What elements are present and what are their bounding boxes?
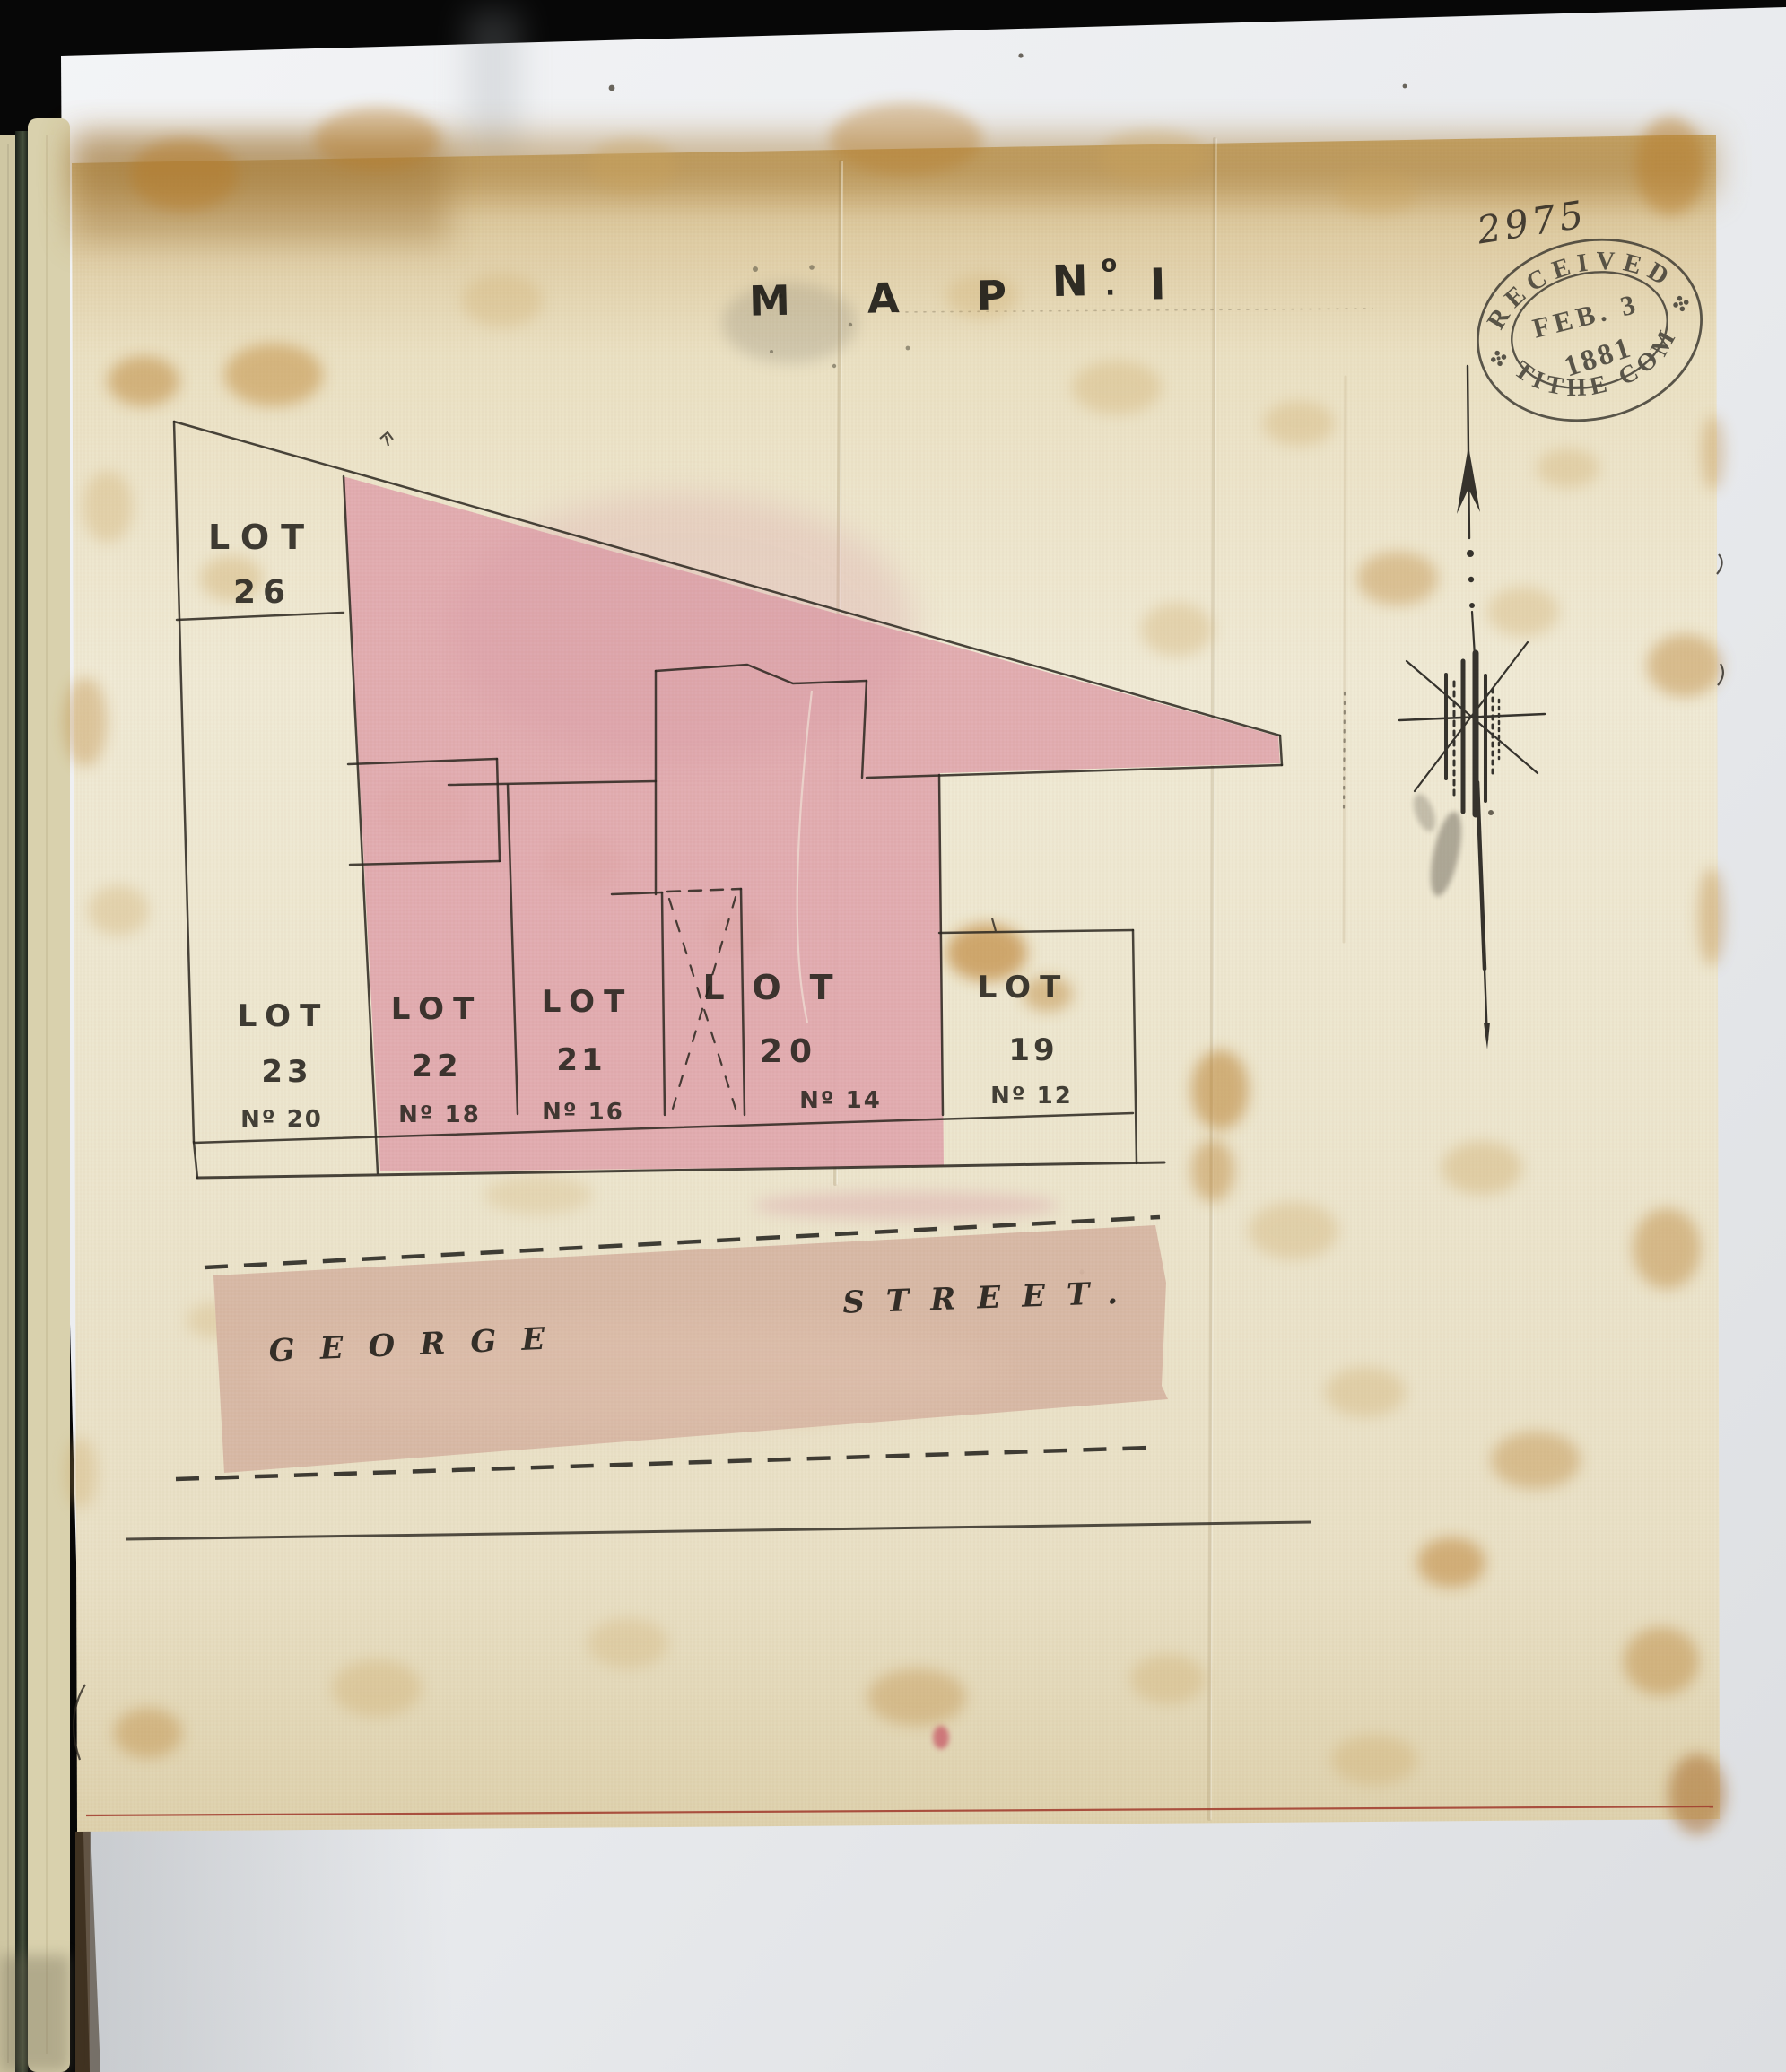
lot-22-number: 22 [411, 1049, 462, 1084]
lot-22-word: LOT [391, 991, 484, 1027]
lot-19-number: 19 [1008, 1032, 1058, 1068]
lot-20-word: LOT [702, 968, 861, 1007]
lot-23-house-no: Nº 20 [240, 1106, 323, 1133]
title-map-word: MAP [748, 269, 1084, 325]
page-edge-stack [0, 118, 70, 2072]
lot-23-number: 23 [261, 1054, 312, 1090]
lot-19-word: LOT [978, 970, 1070, 1006]
lot-20-number: 20 [760, 1033, 819, 1070]
scanned-map-page: LOT 26 LOT 23 Nº 20 LOT 22 Nº 18 LOT 21 … [0, 0, 1786, 2072]
lot-21-number: 21 [556, 1042, 605, 1078]
lot-26-number: 26 [233, 574, 292, 611]
lot-20-house-no: Nº 14 [799, 1087, 882, 1114]
lot-22-house-no: Nº 18 [398, 1101, 481, 1128]
lot-21-house-no: Nº 16 [542, 1099, 624, 1126]
title-no-dot: . [1104, 270, 1115, 301]
title-no-prefix: N [1051, 256, 1088, 307]
lot-21-word: LOT [542, 984, 634, 1020]
lot-26-word: LOT [208, 518, 316, 557]
lot-23-word: LOT [238, 998, 330, 1034]
title-numeral: I [1149, 259, 1166, 309]
lot-19-house-no: Nº 12 [990, 1083, 1073, 1110]
